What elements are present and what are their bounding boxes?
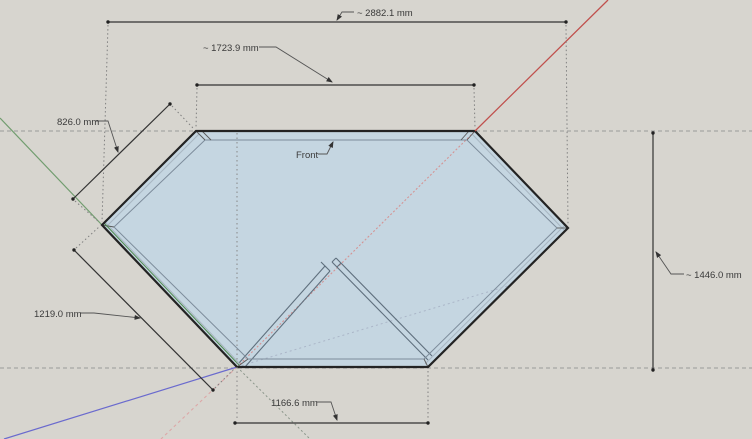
front-label: Front <box>296 150 319 161</box>
dimension-right-height-label: ~ 1446.0 mm <box>686 270 742 281</box>
dimension-top-width-label: ~ 2882.1 mm <box>357 8 413 19</box>
dimension-lower-left-edge-label: 1219.0 mm <box>34 309 82 320</box>
dimension-bottom-edge-label: 1166.6 mm <box>271 398 318 409</box>
cad-viewport[interactable]: ~ 2882.1 mm ~ 1723.9 mm 826.0 mm 1219.0 … <box>0 0 752 439</box>
dimension-upper-left-edge-label: 826.0 mm <box>57 117 99 128</box>
model-drawing: ~ 2882.1 mm ~ 1723.9 mm 826.0 mm 1219.0 … <box>0 0 752 439</box>
dimension-front-edge-label: ~ 1723.9 mm <box>203 43 259 54</box>
